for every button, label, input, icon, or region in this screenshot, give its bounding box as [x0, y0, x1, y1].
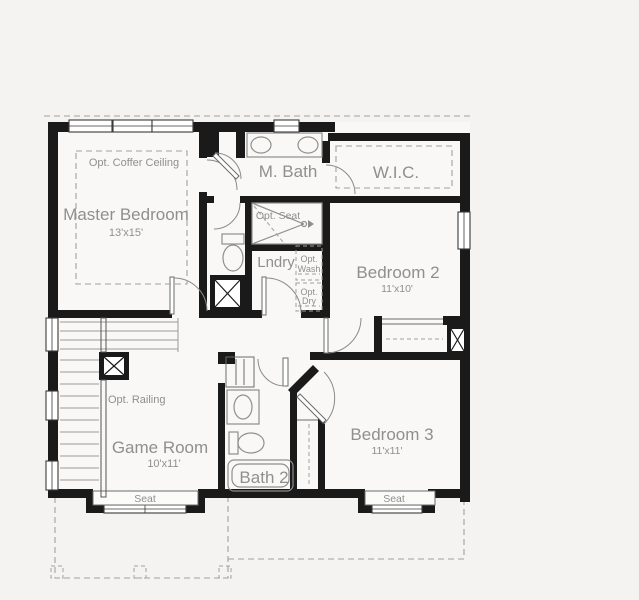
window: [46, 318, 58, 490]
bedroom2-dims: 11'x10': [381, 283, 413, 295]
railing-label: Opt. Railing: [108, 394, 165, 406]
door-leaf: [283, 358, 288, 386]
dryer-label-2: Dry: [302, 296, 316, 306]
chase-x-box: [447, 325, 468, 355]
coffer-ceiling-label: Opt. Coffer Ceiling: [89, 157, 179, 169]
master-bedroom-dims: 13'x15': [109, 227, 143, 239]
master-bath-label: M. Bath: [259, 162, 318, 181]
bay-window: [104, 505, 186, 513]
bedroom2-label: Bedroom 2: [356, 263, 439, 282]
bedroom3-dims: 11'x11': [371, 445, 402, 457]
master-bedroom-label: Master Bedroom: [63, 205, 189, 224]
window: [69, 120, 193, 132]
post: [134, 566, 146, 578]
post: [51, 566, 63, 578]
post: [219, 566, 231, 578]
window-seat-label: Seat: [383, 493, 405, 505]
bath2-label: Bath 2: [239, 468, 288, 487]
game-room-dims: 10'x11': [147, 458, 180, 470]
bedroom3-label: Bedroom 3: [350, 425, 433, 444]
window: [274, 120, 299, 132]
laundry-label: Lndry: [257, 254, 295, 271]
shower-seat-label: Opt. Seat: [256, 210, 300, 222]
chase-x-box: [210, 275, 245, 312]
game-room-label: Game Room: [112, 438, 208, 457]
floor-plan: Opt. Coffer Ceiling Master Bedroom 13'x1…: [0, 0, 639, 600]
door-leaf: [170, 277, 174, 314]
bay-window: [372, 505, 422, 513]
washer-label-1: Opt.: [300, 254, 317, 264]
wic-label: W.I.C.: [373, 163, 419, 182]
window-seat-label: Seat: [134, 493, 156, 505]
stair-newel-x-box: [99, 352, 129, 380]
door-leaf: [262, 277, 266, 315]
window: [458, 212, 470, 249]
door-leaf: [324, 318, 328, 353]
washer-label-2: Wash: [298, 264, 321, 274]
